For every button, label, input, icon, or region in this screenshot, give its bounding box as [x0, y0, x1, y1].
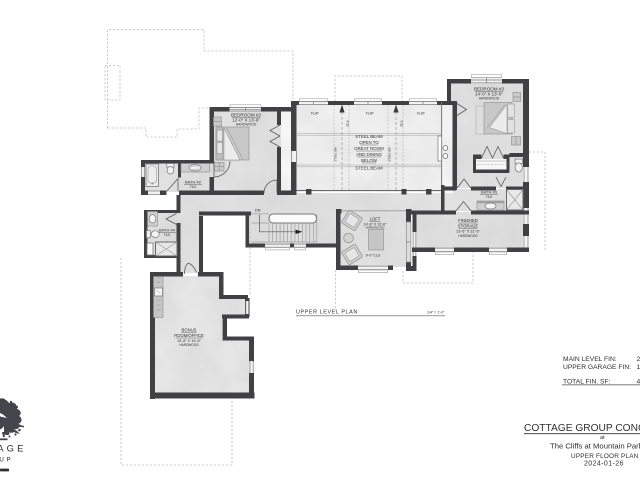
svg-text:HARDWOOD: HARDWOOD: [366, 225, 385, 229]
svg-text:TILE: TILE: [164, 233, 171, 237]
svg-text:AND DINING: AND DINING: [356, 152, 382, 157]
svg-text:4:12: 4:12: [400, 121, 404, 127]
svg-text:at: at: [600, 435, 605, 441]
svg-text:OUP: OUP: [0, 457, 13, 464]
svg-text:FLAT: FLAT: [311, 112, 319, 116]
svg-text:1,: 1,: [637, 364, 640, 371]
svg-text:FLAT: FLAT: [417, 112, 425, 116]
svg-text:COTTAGE GROUP CONCEP: COTTAGE GROUP CONCEP: [524, 423, 640, 434]
svg-text:BELOW: BELOW: [361, 158, 378, 163]
svg-text:The Cliffs at Mountain Park: The Cliffs at Mountain Park: [550, 441, 640, 450]
svg-text:HARDWOOD: HARDWOOD: [458, 234, 478, 238]
svg-text:2,: 2,: [637, 356, 640, 363]
svg-text:4,: 4,: [637, 379, 640, 386]
svg-text:DN: DN: [255, 209, 261, 213]
svg-text:TILE: TILE: [486, 195, 493, 199]
svg-text:1/4" = 1'-0": 1/4" = 1'-0": [427, 311, 445, 315]
svg-text:ROOM/OFFICE: ROOM/OFFICE: [174, 333, 204, 338]
svg-text:UPPER LEVEL PLAN: UPPER LEVEL PLAN: [296, 310, 358, 316]
svg-text:STEEL BM: STEEL BM: [334, 147, 338, 162]
svg-text:9'-0" CLG: 9'-0" CLG: [366, 254, 381, 258]
svg-text:STEEL BM: STEEL BM: [388, 147, 392, 162]
svg-text:GREAT ROOM: GREAT ROOM: [354, 146, 384, 151]
svg-text:BATH #3: BATH #3: [481, 190, 498, 195]
svg-text:STORAGE: STORAGE: [458, 224, 479, 229]
svg-text:HARDWOOD: HARDWOOD: [179, 343, 199, 347]
svg-text:HARDWOOD: HARDWOOD: [479, 96, 500, 100]
svg-text:BONUS: BONUS: [182, 328, 197, 333]
svg-text:BATH #2: BATH #2: [185, 180, 202, 185]
svg-text:FLAT: FLAT: [366, 112, 374, 116]
svg-text:TOTAL FIN. SF:: TOTAL FIN. SF:: [563, 379, 611, 386]
svg-text:UPPER GARAGE FIN:: UPPER GARAGE FIN:: [563, 364, 631, 371]
svg-text:LOFT: LOFT: [370, 217, 381, 222]
svg-text:4:12: 4:12: [346, 121, 350, 127]
svg-text:STEEL BEAM: STEEL BEAM: [355, 166, 383, 171]
svg-text:UPPER FLOOR PLAN: UPPER FLOOR PLAN: [571, 453, 639, 460]
svg-text:STEEL BEAM: STEEL BEAM: [355, 134, 383, 139]
svg-text:2024-01-26: 2024-01-26: [584, 461, 624, 468]
svg-text:OPEN TO: OPEN TO: [359, 140, 379, 145]
svg-text:TILE: TILE: [190, 185, 197, 189]
svg-text:TAGE: TAGE: [0, 443, 27, 454]
svg-text:BATH #4: BATH #4: [159, 228, 176, 233]
svg-text:MAIN LEVEL FIN:: MAIN LEVEL FIN:: [563, 356, 617, 363]
svg-text:FINISHED: FINISHED: [458, 218, 478, 223]
svg-text:HARDWOOD: HARDWOOD: [236, 122, 257, 126]
